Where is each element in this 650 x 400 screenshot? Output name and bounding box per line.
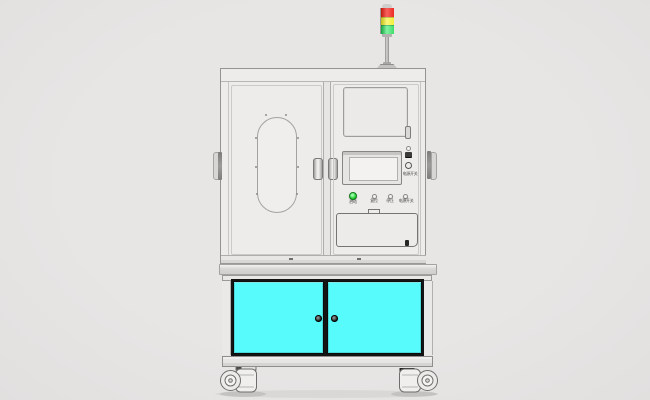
lower-cabinet-bottom-rail (222, 356, 433, 367)
lower-frame-post-right (424, 281, 433, 355)
lower-cabinet (0, 0, 650, 400)
door-knob-right (331, 315, 338, 322)
lower-frame-post-left (222, 281, 231, 355)
lower-door-right (327, 281, 422, 354)
door-knob-left (315, 315, 322, 322)
machine-illustration: 电源开关 启动 复位 停止 电源开关 (0, 0, 650, 400)
lower-door-left (233, 281, 324, 354)
